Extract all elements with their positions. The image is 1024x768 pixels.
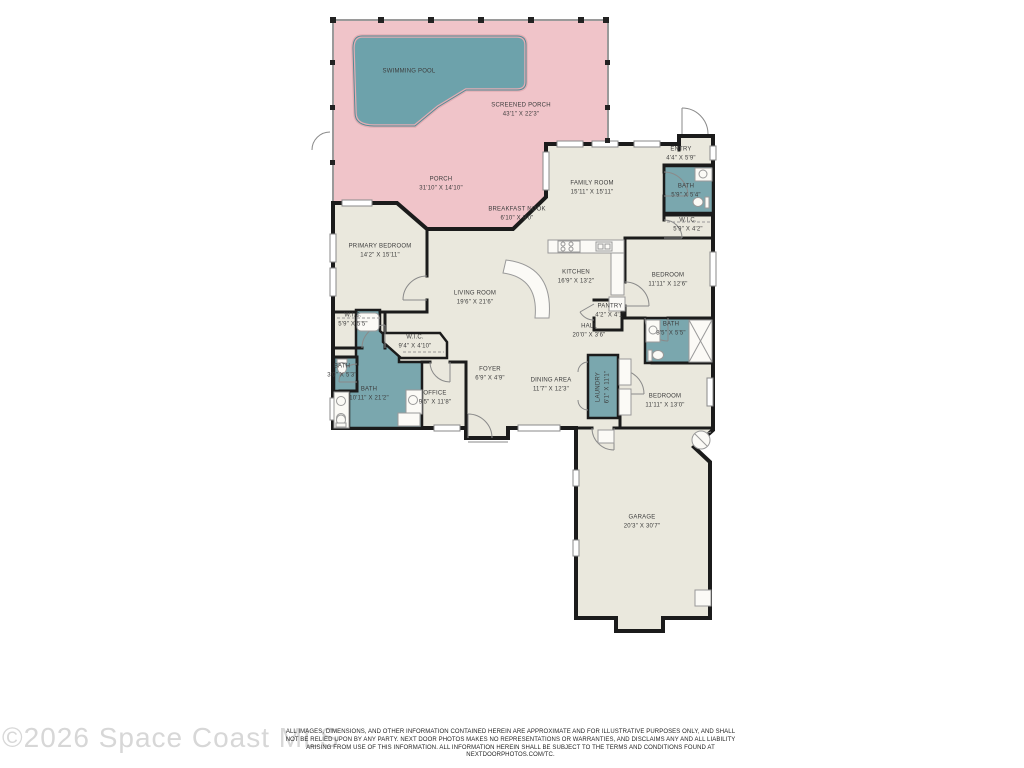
room-label-dining-area: DINING AREA11'7" X 12'3": [531, 376, 572, 393]
sink: [699, 170, 707, 178]
room-label-primary-bedroom: PRIMARY BEDROOM14'2" X 15'11": [349, 242, 412, 259]
room-label-screened-porch: SCREENED PORCH43'1" X 22'3": [491, 101, 550, 118]
room-label-pantry: PANTRY4'2" X 4'1": [595, 302, 624, 319]
toilet: [653, 351, 664, 360]
room-label-porch: PORCH31'10" X 14'10": [419, 175, 463, 192]
room-label-hall: HALL20'0" X 3'6": [573, 322, 606, 339]
room-label-bedroom-back: BEDROOM11'11" X 13'0": [645, 392, 684, 409]
primary-shower: [398, 413, 420, 426]
room-label-bath-small: BATH3'0" X 5'3": [327, 362, 356, 379]
room-label-wic-primary-2: W.I.C.9'4" X 4'10": [399, 333, 432, 350]
room-label-swimming-pool: SWIMMING POOL: [383, 68, 436, 77]
room-label-bath-primary: BATH10'11" X 21'2": [349, 385, 389, 402]
washer: [619, 359, 631, 385]
room-label-foyer: FOYER6'9" X 4'9": [475, 365, 504, 382]
room-label-family-room: FAMILY ROOM15'11" X 15'11": [570, 179, 613, 196]
room-label-living-room: LIVING ROOM19'6" X 21'6": [454, 289, 496, 306]
room-label-bath-entry: BATH5'9" X 5'4": [671, 182, 700, 199]
sink: [337, 397, 346, 406]
room-label-wic-entry: W.I.C.5'9" X 4'2": [673, 216, 702, 233]
room-label-breakfast-nook: BREAKFAST NOOK6'10" X 9'0": [488, 205, 545, 222]
room-label-office: OFFICE9'5" X 11'8": [419, 389, 452, 406]
room-label-bedroom-front: BEDROOM11'11" X 12'6": [648, 271, 687, 288]
room-label-bath-hall: BATH8'5" X 5'5": [656, 320, 685, 337]
toilet-tank: [648, 350, 652, 361]
disclaimer: ALL IMAGES, DIMENSIONS, AND OTHER INFORM…: [283, 729, 738, 760]
dryer: [619, 389, 631, 415]
floorplan-page: SWIMMING POOL SCREENED PORCH43'1" X 22'3…: [0, 0, 1024, 768]
room-label-entry: ENTRY4'4" X 5'9": [666, 145, 695, 162]
garage-box: [695, 590, 711, 606]
room-label-laundry: LAUNDRY6'1" X 11'1": [594, 371, 611, 404]
room-label-wic-primary-1: W.I.C.5'9" X 5'5": [338, 311, 367, 328]
kitchen-counter-side: [611, 253, 624, 295]
room-label-garage: GARAGE20'3" X 30'7": [624, 513, 661, 530]
room-label-kitchen: KITCHEN16'9" X 13'2": [558, 268, 595, 285]
garage-utility: [598, 430, 614, 443]
toilet-tank: [705, 197, 709, 208]
sink: [409, 396, 418, 405]
